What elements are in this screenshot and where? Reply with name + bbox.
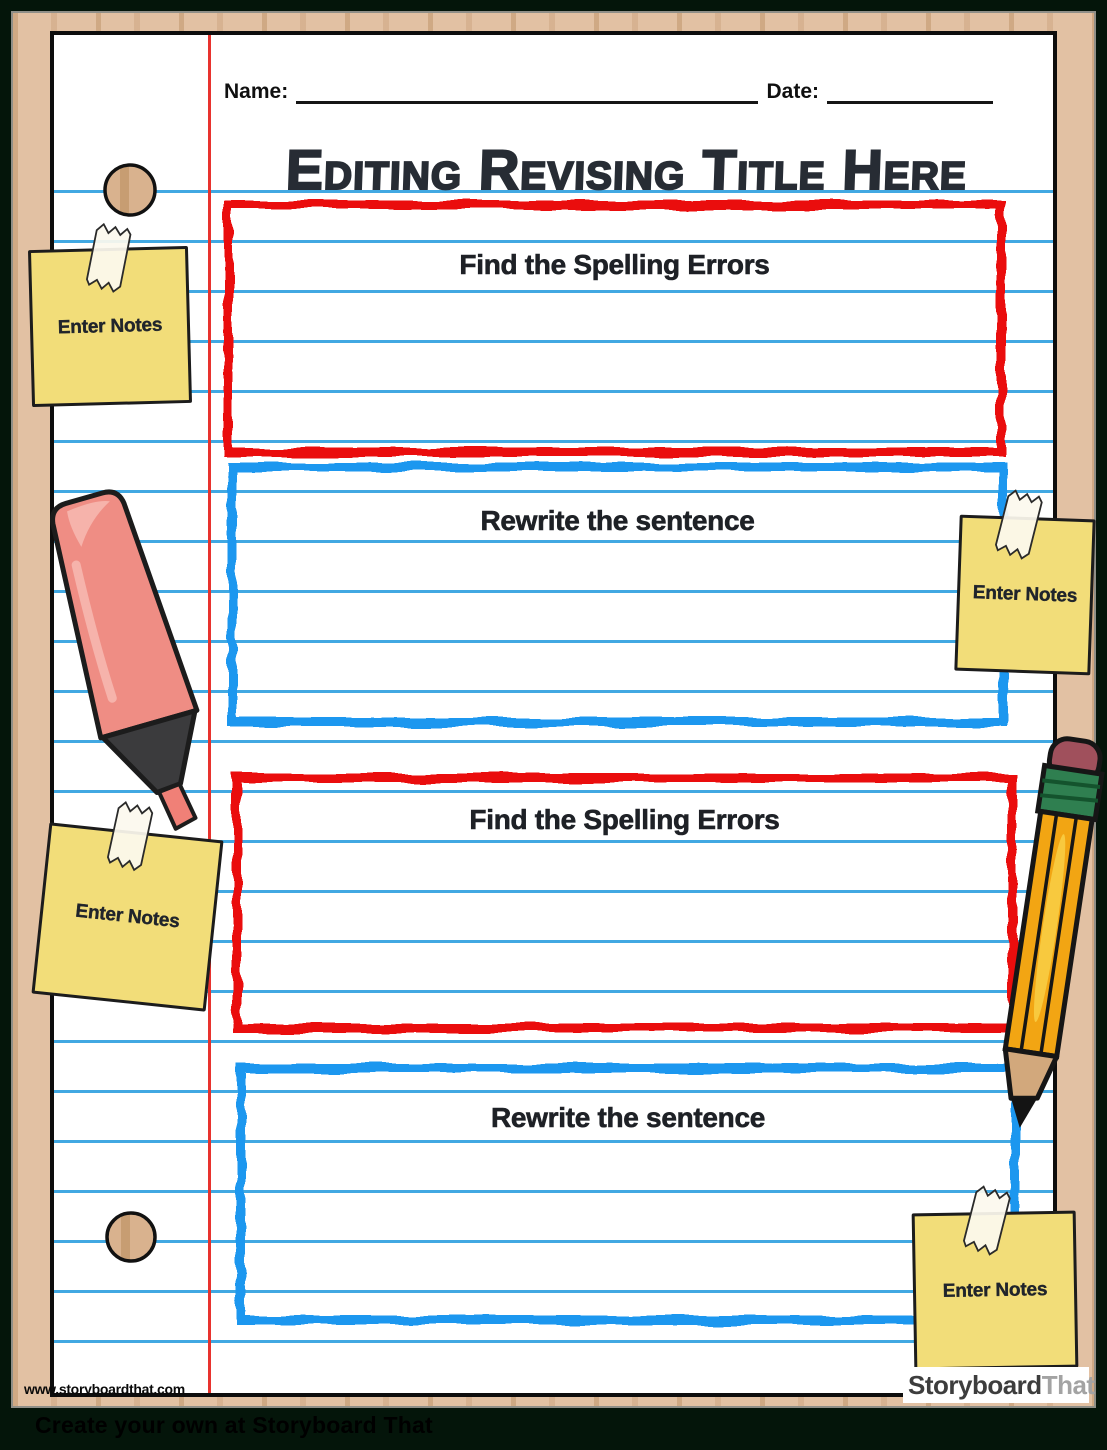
section-label[interactable]: Rewrite the sentence xyxy=(491,1102,765,1134)
logo-text-that: That xyxy=(1042,1370,1095,1400)
worksheet-canvas: Create your own at Storyboard That Name:… xyxy=(0,0,1107,1450)
name-date-row: Name: Date: xyxy=(224,77,993,104)
sticky-note[interactable]: Enter Notes xyxy=(31,822,223,1011)
worksheet-title[interactable]: Editing Revising Title Here xyxy=(203,131,1051,207)
site-url[interactable]: www.storyboardthat.com xyxy=(24,1381,185,1397)
sticky-note-text[interactable]: Enter Notes xyxy=(74,901,180,934)
sticky-note[interactable]: Enter Notes xyxy=(912,1211,1079,1371)
name-blank-line[interactable] xyxy=(296,77,758,104)
logo-text-storyboard: Storyboard xyxy=(908,1370,1042,1400)
date-label: Date: xyxy=(766,80,819,104)
section-box-spelling-2[interactable]: Find the Spelling Errors xyxy=(241,782,1008,1024)
sticky-note[interactable]: Enter Notes xyxy=(954,515,1095,676)
sticky-note-text[interactable]: Enter Notes xyxy=(972,582,1077,608)
sticky-note-text[interactable]: Enter Notes xyxy=(943,1279,1048,1303)
section-label[interactable]: Find the Spelling Errors xyxy=(469,804,779,836)
date-blank-line[interactable] xyxy=(827,77,993,104)
section-box-rewrite-1[interactable]: Rewrite the sentence xyxy=(236,471,999,718)
logo-text: StoryboardThat xyxy=(908,1370,1095,1401)
section-label[interactable]: Find the Spelling Errors xyxy=(459,249,769,281)
margin-line xyxy=(208,35,211,1393)
storyboardthat-logo[interactable]: StoryboardThat xyxy=(903,1367,1089,1403)
create-your-own-caption: Create your own at Storyboard That xyxy=(35,1412,433,1439)
sticky-note-text[interactable]: Enter Notes xyxy=(58,314,163,339)
sticky-note[interactable]: Enter Notes xyxy=(28,246,192,407)
section-label[interactable]: Rewrite the sentence xyxy=(480,505,754,537)
name-label: Name: xyxy=(224,80,288,104)
section-box-rewrite-2[interactable]: Rewrite the sentence xyxy=(245,1072,1011,1316)
section-box-spelling-1[interactable]: Find the Spelling Errors xyxy=(232,209,997,448)
